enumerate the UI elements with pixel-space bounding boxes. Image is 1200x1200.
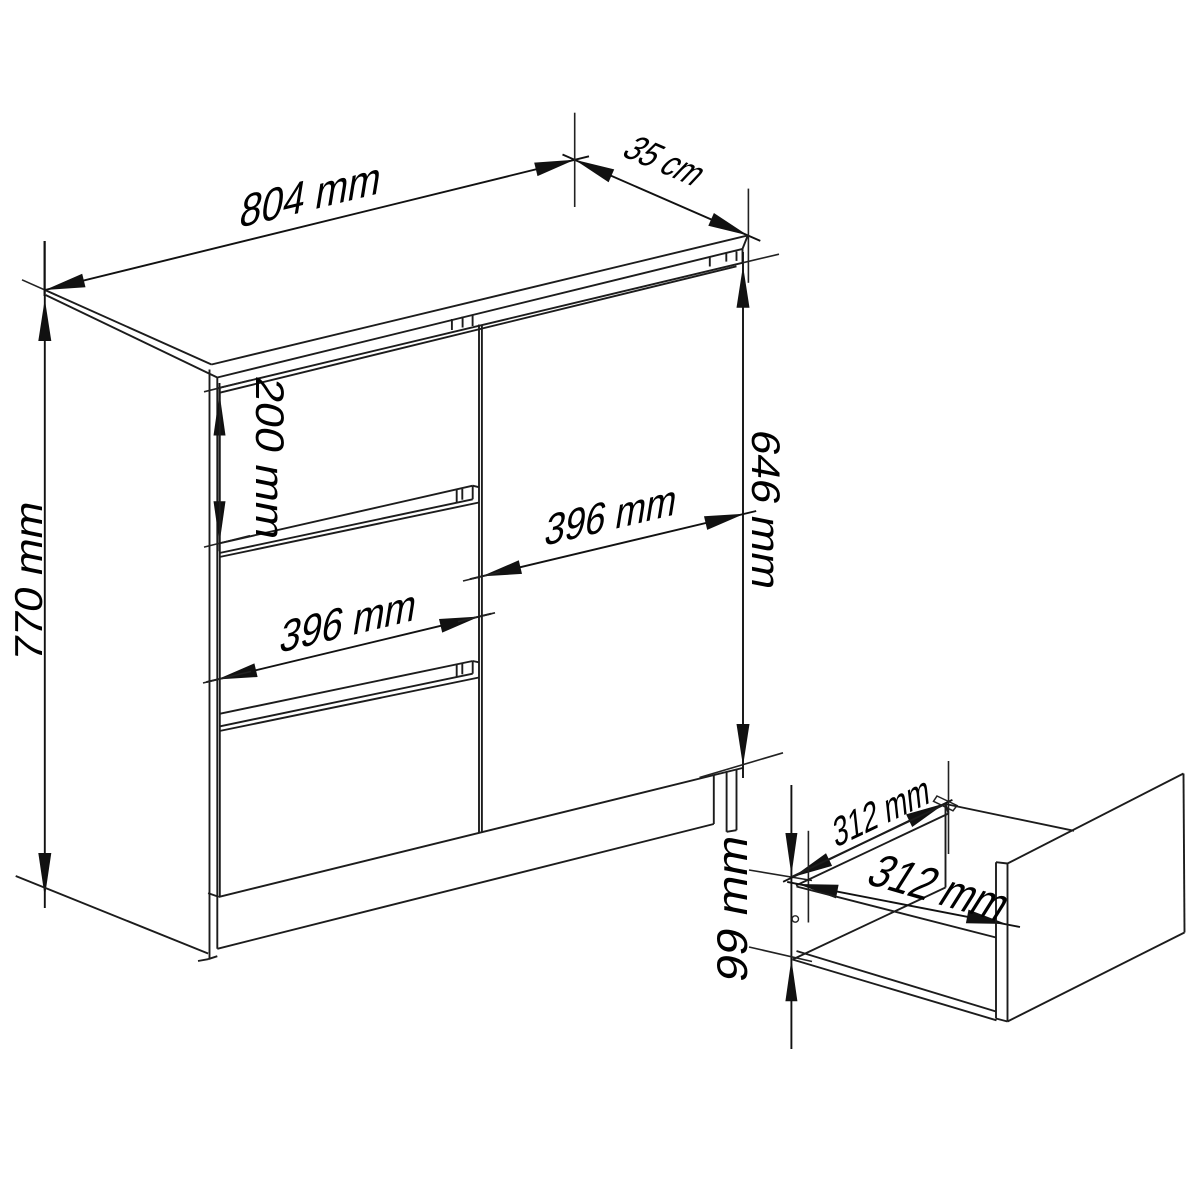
- svg-text:99 mm: 99 mm: [709, 831, 757, 986]
- svg-text:770 mm: 770 mm: [7, 497, 51, 665]
- svg-text:646 mm: 646 mm: [744, 426, 788, 594]
- svg-text:200 mm: 200 mm: [247, 373, 292, 544]
